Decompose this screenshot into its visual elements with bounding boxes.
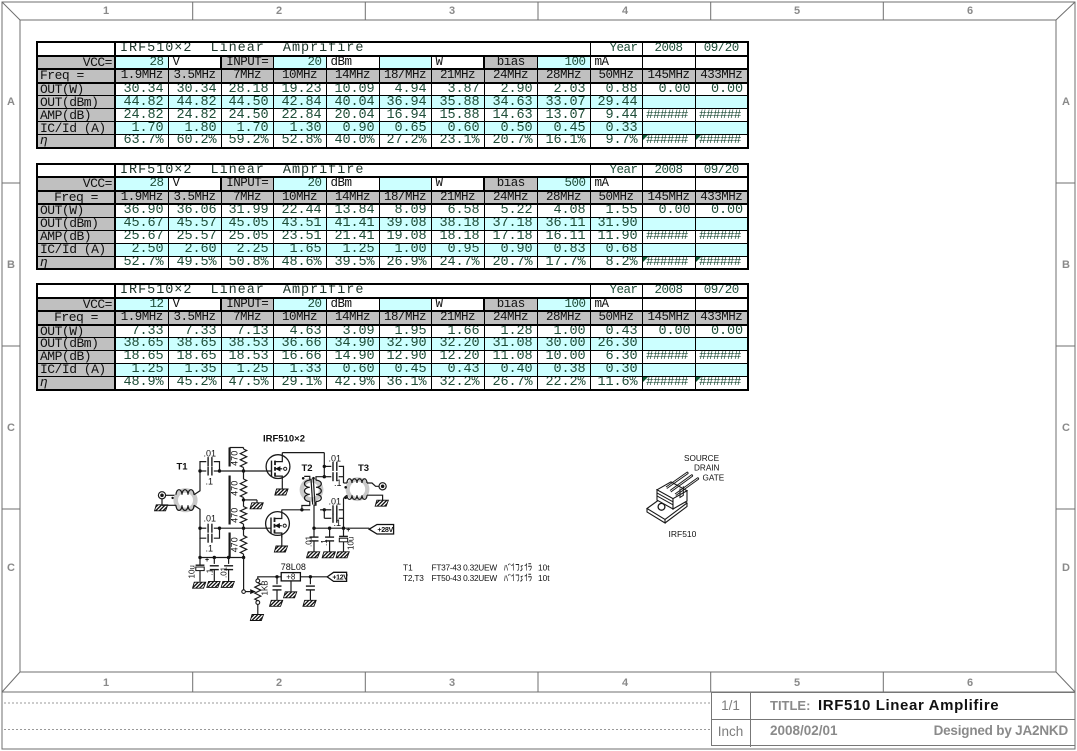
svg-text:6: 6: [967, 5, 973, 17]
svg-text:470: 470: [230, 451, 240, 466]
svg-text:C: C: [7, 562, 15, 574]
svg-text:.1: .1: [334, 478, 342, 488]
svg-text:.1: .1: [320, 539, 329, 546]
svg-text:T2: T2: [302, 463, 313, 474]
svg-text:.1: .1: [206, 477, 214, 487]
svg-text:DRAIN: DRAIN: [694, 464, 720, 473]
svg-text:5: 5: [794, 677, 800, 689]
svg-text:2: 2: [276, 5, 282, 17]
svg-text:6: 6: [967, 677, 973, 689]
svg-text:3: 3: [449, 5, 455, 17]
svg-text:.1: .1: [334, 518, 342, 528]
svg-text:A: A: [7, 96, 15, 108]
svg-text:+12V: +12V: [332, 575, 348, 582]
svg-text:.01: .01: [204, 449, 217, 459]
svg-text:.01: .01: [305, 535, 314, 547]
svg-text:.01: .01: [329, 454, 342, 464]
svg-text:+: +: [205, 557, 209, 564]
svg-text:470: 470: [230, 481, 240, 496]
svg-text:10t: 10t: [538, 563, 550, 573]
svg-text:B: B: [1062, 259, 1070, 271]
svg-text:FT37-43 0.32UEW: FT37-43 0.32UEW: [432, 563, 498, 573]
svg-text:SOURCE: SOURCE: [684, 454, 720, 463]
svg-text:.1: .1: [206, 544, 214, 554]
svg-text:GATE: GATE: [703, 474, 725, 483]
svg-text:3: 3: [449, 677, 455, 689]
svg-text:4: 4: [622, 5, 629, 17]
svg-text:D: D: [1062, 562, 1070, 574]
svg-text:4: 4: [622, 677, 629, 689]
svg-text:470: 470: [230, 537, 240, 552]
svg-text:.01: .01: [329, 497, 342, 507]
svg-text:5: 5: [794, 5, 800, 17]
svg-text:IRF510: IRF510: [669, 529, 697, 539]
svg-text:10t: 10t: [538, 573, 550, 583]
svg-text:1: 1: [103, 5, 109, 17]
svg-text:1: 1: [103, 677, 109, 689]
svg-text:T1: T1: [403, 563, 413, 573]
svg-text:10u: 10u: [347, 537, 356, 550]
svg-text:FT50-43 0.32UEW: FT50-43 0.32UEW: [432, 573, 498, 583]
svg-text:T1: T1: [177, 462, 189, 473]
svg-text:2: 2: [276, 677, 282, 689]
svg-text:1KB: 1KB: [261, 580, 270, 595]
svg-text:IRF510×2: IRF510×2: [263, 434, 305, 445]
svg-text:C: C: [7, 422, 15, 434]
svg-text:.1: .1: [205, 568, 214, 575]
svg-text:T2,T3: T2,T3: [403, 573, 424, 583]
svg-text:+8: +8: [286, 573, 296, 582]
svg-text:.01: .01: [204, 514, 217, 524]
svg-text:470: 470: [230, 508, 240, 523]
svg-text:B: B: [7, 259, 15, 271]
svg-text:+: +: [346, 527, 350, 534]
svg-text:.01: .01: [220, 566, 229, 578]
svg-text:10u: 10u: [188, 565, 197, 578]
svg-text:78L08: 78L08: [281, 562, 306, 572]
svg-text:+28V: +28V: [377, 525, 393, 534]
svg-text:A: A: [1062, 96, 1070, 108]
svg-text:C: C: [1062, 422, 1070, 434]
svg-text:T3: T3: [358, 463, 369, 474]
